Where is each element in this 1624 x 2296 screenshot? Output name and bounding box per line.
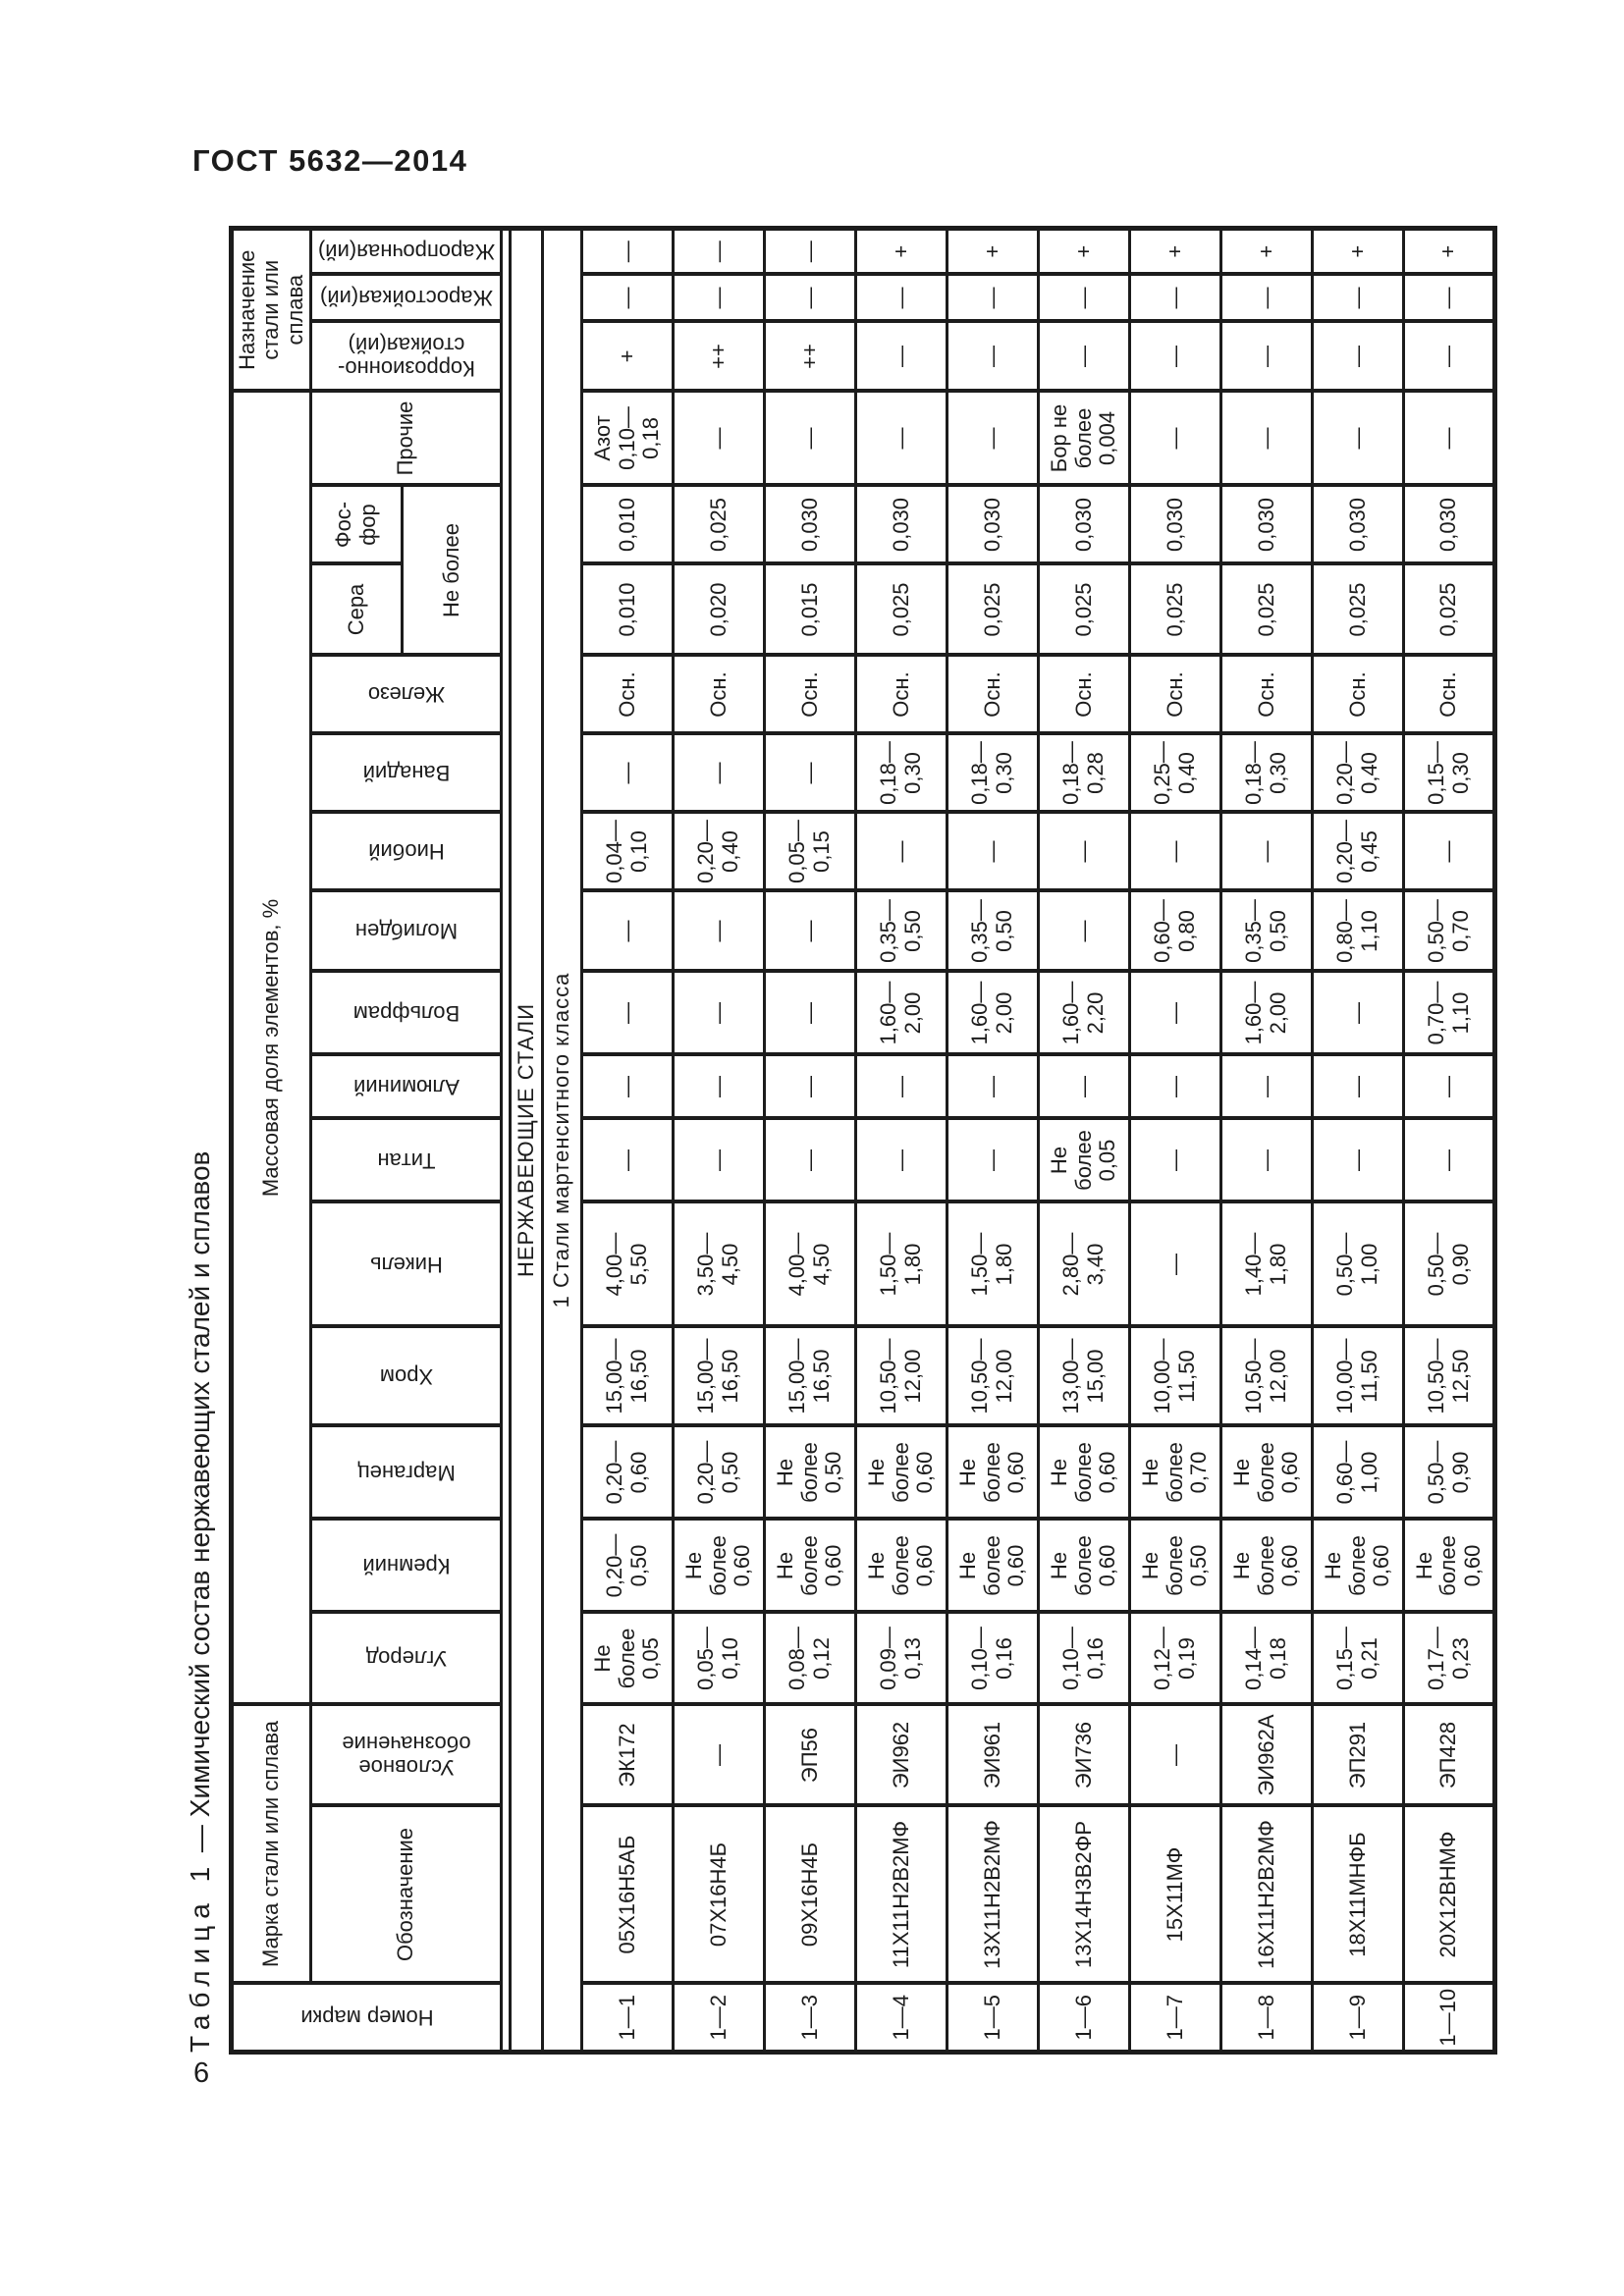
cell-p: 0,030 (1404, 486, 1495, 564)
cell-other: — (765, 391, 856, 485)
col-header-manganese: Марганец (311, 1426, 502, 1520)
cell-num: 1—3 (765, 1984, 856, 2053)
cell-ni: 1,50— 1,80 (947, 1202, 1039, 1327)
cell-si: Не более 0,60 (1313, 1520, 1404, 1613)
cell-mn: Не более 0,50 (765, 1426, 856, 1520)
cell-conv: ЭП56 (765, 1705, 856, 1806)
cell-si: Не более 0,60 (765, 1520, 856, 1613)
cell-cr: 10,00— 11,50 (1130, 1327, 1221, 1426)
cell-s: 0,025 (1313, 564, 1404, 656)
cell-c: 0,17— 0,23 (1404, 1613, 1495, 1705)
cell-s: 0,010 (582, 564, 674, 656)
cell-ti: — (1221, 1119, 1313, 1202)
cell-si: Не более 0,60 (947, 1520, 1039, 1613)
col-header-high-temperature: Жаропрочная(ий) (311, 228, 502, 274)
cell-s: 0,015 (765, 564, 856, 656)
cell-si: Не более 0,60 (1039, 1520, 1130, 1613)
col-header-titanium: Титан (311, 1119, 502, 1202)
cell-ni: 2,80— 3,40 (1039, 1202, 1130, 1327)
cell-ti: — (856, 1119, 947, 1202)
cell-al: — (582, 1055, 674, 1119)
cell-strength: — (582, 228, 674, 274)
cell-w: — (1130, 972, 1221, 1055)
cell-cr: 10,00— 11,50 (1313, 1327, 1404, 1426)
col-header-molybdenum-label: Молибден (354, 920, 457, 943)
cell-ni: 0,50— 1,00 (1313, 1202, 1404, 1327)
col-header-corrosion-resistant: Коррозионно- стойкая(ий) (311, 321, 502, 391)
cell-c: 0,08— 0,12 (765, 1613, 856, 1705)
cell-fe: Осн. (1313, 656, 1404, 734)
cell-p: 0,030 (1130, 486, 1221, 564)
cell-heat: — (1130, 274, 1221, 321)
cell-mn: Не более 0,60 (1039, 1426, 1130, 1520)
col-header-mass-fraction: Массовая доля элементов, % (232, 391, 311, 1704)
cell-corr: — (947, 321, 1039, 391)
cell-s: 0,025 (947, 564, 1039, 656)
cell-conv: — (674, 1705, 765, 1806)
cell-fe: Осн. (765, 656, 856, 734)
cell-ti: Не более 0,05 (1039, 1119, 1130, 1202)
cell-w: — (582, 972, 674, 1055)
cell-w: — (1313, 972, 1404, 1055)
cell-mark: 13Х11Н2В2МФ (947, 1806, 1039, 1984)
cell-si: Не более 0,60 (674, 1520, 765, 1613)
col-header-grade-number-label: Номер марки (300, 2005, 433, 2029)
steel-grade-row: 1—513Х11Н2В2МФЭИ9610,10— 0,16Не более 0,… (947, 228, 1039, 2052)
col-header-chromium-label: Хром (379, 1364, 432, 1388)
document-page: ГОСТ 5632—2014 Таблица 1 — Химический со… (0, 0, 1624, 2296)
cell-strength: + (1404, 228, 1495, 274)
steel-grade-row: 1—816Х11Н2В2МФЭИ962А0,14— 0,18Не более 0… (1221, 228, 1313, 2052)
cell-s: 0,025 (1130, 564, 1221, 656)
section-title-martensitic-class: 1 Стали мартенситного класса (543, 228, 582, 2052)
steel-grade-row: 1—1020Х12ВНМФЭП4280,17— 0,23Не более 0,6… (1404, 228, 1495, 2052)
col-header-designation: Обозначение (311, 1806, 502, 1984)
section-row-martensitic: 1 Стали мартенситного класса (543, 228, 582, 2052)
cell-si: Не более 0,60 (1221, 1520, 1313, 1613)
col-header-corrosion-resistant-label: Коррозионно- стойкая(ий) (338, 333, 475, 380)
cell-heat: — (674, 274, 765, 321)
cell-mark: 07Х16Н4Б (674, 1806, 765, 1984)
cell-c: 0,10— 0,16 (1039, 1613, 1130, 1705)
cell-num: 1—10 (1404, 1984, 1495, 2053)
cell-other: — (674, 391, 765, 485)
cell-p: 0,030 (1221, 486, 1313, 564)
cell-corr: ++ (674, 321, 765, 391)
col-header-grade-number: Номер марки (232, 1984, 502, 2053)
cell-v: 0,18— 0,30 (947, 734, 1039, 813)
cell-corr: — (1221, 321, 1313, 391)
cell-heat: — (1039, 274, 1130, 321)
cell-corr: ++ (765, 321, 856, 391)
cell-nb: — (1404, 813, 1495, 891)
steel-grade-row: 1—105Х16Н5АБЭК172Не более 0,050,20— 0,50… (582, 228, 674, 2052)
cell-mo: 0,80— 1,10 (1313, 891, 1404, 972)
cell-heat: — (947, 274, 1039, 321)
col-header-niobium: Ниобий (311, 813, 502, 891)
cell-mark: 20Х12ВНМФ (1404, 1806, 1495, 1984)
cell-v: 0,18— 0,28 (1039, 734, 1130, 813)
cell-conv: ЭИ962 (856, 1705, 947, 1806)
cell-nb: 0,05— 0,15 (765, 813, 856, 891)
col-header-carbon-label: Углерод (365, 1647, 446, 1671)
cell-nb: 0,04— 0,10 (582, 813, 674, 891)
col-header-tungsten: Вольфрам (311, 972, 502, 1055)
cell-cr: 10,50— 12,50 (1404, 1327, 1495, 1426)
cell-cr: 15,00— 16,50 (765, 1327, 856, 1426)
cell-ti: — (765, 1119, 856, 1202)
cell-s: 0,020 (674, 564, 765, 656)
cell-mn: 0,50— 0,90 (1404, 1426, 1495, 1520)
cell-ti: — (1130, 1119, 1221, 1202)
cell-fe: Осн. (582, 656, 674, 734)
cell-conv: ЭК172 (582, 1705, 674, 1806)
cell-nb: — (1039, 813, 1130, 891)
cell-conv: ЭИ961 (947, 1705, 1039, 1806)
cell-p: 0,025 (674, 486, 765, 564)
cell-ti: — (582, 1119, 674, 1202)
cell-strength: — (674, 228, 765, 274)
cell-mo: 0,50— 0,70 (1404, 891, 1495, 972)
cell-c: 0,05— 0,10 (674, 1613, 765, 1705)
cell-num: 1—8 (1221, 1984, 1313, 2053)
col-header-conventional-label: Условное обозначение (342, 1732, 470, 1779)
cell-al: — (674, 1055, 765, 1119)
cell-al: — (947, 1055, 1039, 1119)
col-header-carbon: Углерод (311, 1613, 502, 1705)
cell-ni: 1,50— 1,80 (856, 1202, 947, 1327)
col-header-silicon: Кремний (311, 1520, 502, 1613)
cell-num: 1—4 (856, 1984, 947, 2053)
cell-conv: ЭП428 (1404, 1705, 1495, 1806)
cell-other: — (1221, 391, 1313, 485)
cell-ti: — (1313, 1119, 1404, 1202)
cell-cr: 13,00— 15,00 (1039, 1327, 1130, 1426)
chemical-composition-table: Номер марки Марка стали или сплава Массо… (229, 226, 1497, 2055)
cell-w: 1,60— 2,00 (947, 972, 1039, 1055)
steel-grade-row: 1—309Х16Н4БЭП560,08— 0,12Не более 0,60Не… (765, 228, 856, 2052)
cell-cr: 10,50— 12,00 (1221, 1327, 1313, 1426)
cell-strength: + (1130, 228, 1221, 274)
col-header-manganese-label: Марганец (357, 1461, 456, 1484)
cell-w: 1,60— 2,00 (856, 972, 947, 1055)
col-header-vanadium-label: Ванадий (362, 762, 450, 785)
cell-mn: Не более 0,60 (1221, 1426, 1313, 1520)
cell-strength: — (765, 228, 856, 274)
cell-conv: — (1130, 1705, 1221, 1806)
header-row-1: Номер марки Марка стали или сплава Массо… (232, 228, 311, 2052)
cell-w: 1,60— 2,00 (1221, 972, 1313, 1055)
cell-fe: Осн. (1039, 656, 1130, 734)
double-line-gap (502, 228, 511, 2052)
standard-number: ГОСТ 5632—2014 (192, 143, 467, 179)
cell-corr: — (856, 321, 947, 391)
col-header-aluminium: Алюминий (311, 1055, 502, 1119)
cell-v: 0,15— 0,30 (1404, 734, 1495, 813)
cell-nb: — (1221, 813, 1313, 891)
cell-al: — (1130, 1055, 1221, 1119)
cell-num: 1—7 (1130, 1984, 1221, 2053)
cell-p: 0,030 (856, 486, 947, 564)
col-header-iron: Железо (311, 656, 502, 734)
cell-al: — (765, 1055, 856, 1119)
cell-w: 0,70— 1,10 (1404, 972, 1495, 1055)
col-header-nickel: Никель (311, 1202, 502, 1327)
cell-al: — (1404, 1055, 1495, 1119)
cell-mark: 09Х16Н4Б (765, 1806, 856, 1984)
cell-mark: 05Х16Н5АБ (582, 1806, 674, 1984)
cell-mo: 0,35— 0,50 (1221, 891, 1313, 972)
col-header-phosphorus: Фос- фор (311, 486, 403, 564)
cell-mo: 0,35— 0,50 (856, 891, 947, 972)
cell-ti: — (674, 1119, 765, 1202)
cell-c: 0,12— 0,19 (1130, 1613, 1221, 1705)
cell-strength: + (1039, 228, 1130, 274)
cell-al: — (1313, 1055, 1404, 1119)
steel-grade-row: 1—207Х16Н4Б—0,05— 0,10Не более 0,600,20—… (674, 228, 765, 2052)
cell-corr: + (582, 321, 674, 391)
cell-fe: Осн. (947, 656, 1039, 734)
col-header-silicon-label: Кремний (362, 1554, 450, 1577)
col-header-titanium-label: Титан (377, 1148, 435, 1172)
cell-w: — (765, 972, 856, 1055)
cell-mark: 18Х11МНФБ (1313, 1806, 1404, 1984)
steel-grade-row: 1—613Х14Н3В2ФРЭИ7360,10— 0,16Не более 0,… (1039, 228, 1130, 2052)
cell-num: 1—6 (1039, 1984, 1130, 2053)
cell-ni: — (1130, 1202, 1221, 1327)
steel-grade-row: 1—715Х11МФ—0,12— 0,19Не более 0,50Не бол… (1130, 228, 1221, 2052)
cell-v: 0,20— 0,40 (1313, 734, 1404, 813)
cell-strength: + (856, 228, 947, 274)
grade-rows: 1—105Х16Н5АБЭК172Не более 0,050,20— 0,50… (582, 228, 1495, 2052)
cell-s: 0,025 (856, 564, 947, 656)
cell-cr: 10,50— 12,00 (856, 1327, 947, 1426)
cell-nb: — (856, 813, 947, 891)
cell-mn: 0,60— 1,00 (1313, 1426, 1404, 1520)
section-title-stainless-steels: НЕРЖАВЕЮЩИЕ СТАЛИ (511, 228, 543, 2052)
cell-c: 0,15— 0,21 (1313, 1613, 1404, 1705)
cell-mo: — (674, 891, 765, 972)
cell-ti: — (947, 1119, 1039, 1202)
cell-num: 1—1 (582, 1984, 674, 2053)
cell-fe: Осн. (674, 656, 765, 734)
cell-nb: 0,20— 0,40 (674, 813, 765, 891)
cell-al: — (1221, 1055, 1313, 1119)
cell-nb: — (947, 813, 1039, 891)
cell-si: 0,20— 0,50 (582, 1520, 674, 1613)
cell-ti: — (1404, 1119, 1495, 1202)
cell-other: — (1130, 391, 1221, 485)
steel-grade-row: 1—918Х11МНФБЭП2910,15— 0,21Не более 0,60… (1313, 228, 1404, 2052)
cell-mn: Не более 0,60 (856, 1426, 947, 1520)
cell-fe: Осн. (1221, 656, 1313, 734)
cell-fe: Осн. (1404, 656, 1495, 734)
cell-num: 1—9 (1313, 1984, 1404, 2053)
col-header-conventional: Условное обозначение (311, 1705, 502, 1806)
cell-corr: — (1039, 321, 1130, 391)
cell-v: 0,18— 0,30 (856, 734, 947, 813)
col-header-purpose-group: Назначение стали или сплава (232, 228, 311, 391)
col-header-aluminium-label: Алюминий (353, 1075, 460, 1098)
cell-mn: Не более 0,70 (1130, 1426, 1221, 1520)
cell-mo: — (1039, 891, 1130, 972)
cell-ni: 4,00— 4,50 (765, 1202, 856, 1327)
cell-s: 0,025 (1404, 564, 1495, 656)
cell-nb: 0,20— 0,45 (1313, 813, 1404, 891)
cell-cr: 15,00— 16,50 (582, 1327, 674, 1426)
header-body-divider (502, 228, 511, 2052)
cell-cr: 15,00— 16,50 (674, 1327, 765, 1426)
cell-heat: — (1313, 274, 1404, 321)
cell-v: — (765, 734, 856, 813)
cell-c: Не более 0,05 (582, 1613, 674, 1705)
cell-heat: — (582, 274, 674, 321)
cell-v: 0,18— 0,30 (1221, 734, 1313, 813)
col-header-molybdenum: Молибден (311, 891, 502, 972)
cell-c: 0,09— 0,13 (856, 1613, 947, 1705)
col-header-heat-resistant: Жаростойкая(ий) (311, 274, 502, 321)
cell-other: Азот 0,10— 0,18 (582, 391, 674, 485)
cell-ni: 1,40— 1,80 (1221, 1202, 1313, 1327)
cell-w: — (674, 972, 765, 1055)
cell-w: 1,60— 2,20 (1039, 972, 1130, 1055)
col-header-sulfur: Сера (311, 564, 403, 656)
cell-fe: Осн. (1130, 656, 1221, 734)
cell-strength: + (1221, 228, 1313, 274)
cell-strength: + (1313, 228, 1404, 274)
col-header-iron-label: Железо (367, 683, 444, 707)
cell-mn: Не более 0,60 (947, 1426, 1039, 1520)
cell-v: 0,25— 0,40 (1130, 734, 1221, 813)
table-caption: Таблица 1 — Химический состав нержавеющи… (185, 229, 216, 2053)
cell-p: 0,030 (1313, 486, 1404, 564)
cell-mark: 16Х11Н2В2МФ (1221, 1806, 1313, 1984)
cell-other: — (1313, 391, 1404, 485)
col-header-high-temperature-label: Жаропрочная(ий) (317, 240, 494, 263)
col-header-heat-resistant-label: Жаростойкая(ий) (319, 287, 492, 310)
cell-ni: 4,00— 5,50 (582, 1202, 674, 1327)
col-header-niobium-label: Ниобий (368, 840, 445, 864)
cell-other: — (856, 391, 947, 485)
cell-mark: 15Х11МФ (1130, 1806, 1221, 1984)
cell-heat: — (856, 274, 947, 321)
cell-fe: Осн. (856, 656, 947, 734)
cell-conv: ЭИ962А (1221, 1705, 1313, 1806)
cell-heat: — (1221, 274, 1313, 321)
cell-si: Не более 0,60 (856, 1520, 947, 1613)
cell-p: 0,030 (765, 486, 856, 564)
col-header-other: Прочие (311, 391, 502, 485)
cell-s: 0,025 (1221, 564, 1313, 656)
cell-corr: — (1404, 321, 1495, 391)
cell-other: — (1404, 391, 1495, 485)
cell-nb: — (1130, 813, 1221, 891)
cell-ni: 3,50— 4,50 (674, 1202, 765, 1327)
cell-s: 0,025 (1039, 564, 1130, 656)
cell-num: 1—5 (947, 1984, 1039, 2053)
cell-heat: — (765, 274, 856, 321)
cell-cr: 10,50— 12,00 (947, 1327, 1039, 1426)
table-caption-label: Таблица 1 (185, 1860, 215, 2053)
cell-p: 0,010 (582, 486, 674, 564)
header-row-2: Обозначение Условное обозначение Углерод… (311, 228, 403, 2052)
cell-mo: — (582, 891, 674, 972)
col-header-chromium: Хром (311, 1327, 502, 1426)
cell-mark: 13Х14Н3В2ФР (1039, 1806, 1130, 1984)
col-header-not-more: Не более (403, 486, 502, 656)
cell-conv: ЭП291 (1313, 1705, 1404, 1806)
cell-si: Не более 0,60 (1404, 1520, 1495, 1613)
cell-mo: — (765, 891, 856, 972)
section-row-stainless: НЕРЖАВЕЮЩИЕ СТАЛИ (511, 228, 543, 2052)
cell-heat: — (1404, 274, 1495, 321)
cell-p: 0,030 (947, 486, 1039, 564)
col-header-vanadium: Ванадий (311, 734, 502, 813)
cell-c: 0,14— 0,18 (1221, 1613, 1313, 1705)
col-header-nickel-label: Никель (370, 1253, 443, 1276)
cell-other: — (947, 391, 1039, 485)
cell-al: — (856, 1055, 947, 1119)
cell-corr: — (1313, 321, 1404, 391)
cell-al: — (1039, 1055, 1130, 1119)
cell-other: Бор не более 0,004 (1039, 391, 1130, 485)
cell-strength: + (947, 228, 1039, 274)
cell-mark: 11Х11Н2В2МФ (856, 1806, 947, 1984)
cell-p: 0,030 (1039, 486, 1130, 564)
cell-mo: 0,60— 0,80 (1130, 891, 1221, 972)
page-number: 6 (193, 2057, 209, 2090)
cell-mn: 0,20— 0,60 (582, 1426, 674, 1520)
cell-v: — (674, 734, 765, 813)
col-header-mark-group: Марка стали или сплава (232, 1705, 311, 1984)
cell-mo: 0,35— 0,50 (947, 891, 1039, 972)
steel-grade-row: 1—411Х11Н2В2МФЭИ9620,09— 0,13Не более 0,… (856, 228, 947, 2052)
cell-corr: — (1130, 321, 1221, 391)
rotated-table-inner: Таблица 1 — Химический состав нержавеющи… (185, 229, 1506, 2055)
col-header-tungsten-label: Вольфрам (352, 1001, 459, 1025)
table-caption-title: — Химический состав нержавеющих сталей и… (185, 1151, 215, 1860)
cell-conv: ЭИ736 (1039, 1705, 1130, 1806)
cell-ni: 0,50— 0,90 (1404, 1202, 1495, 1327)
cell-si: Не более 0,50 (1130, 1520, 1221, 1613)
cell-mn: 0,20— 0,50 (674, 1426, 765, 1520)
cell-num: 1—2 (674, 1984, 765, 2053)
cell-v: — (582, 734, 674, 813)
cell-c: 0,10— 0,16 (947, 1613, 1039, 1705)
rotated-table-area: Таблица 1 — Химический состав нержавеющи… (185, 229, 1506, 2055)
